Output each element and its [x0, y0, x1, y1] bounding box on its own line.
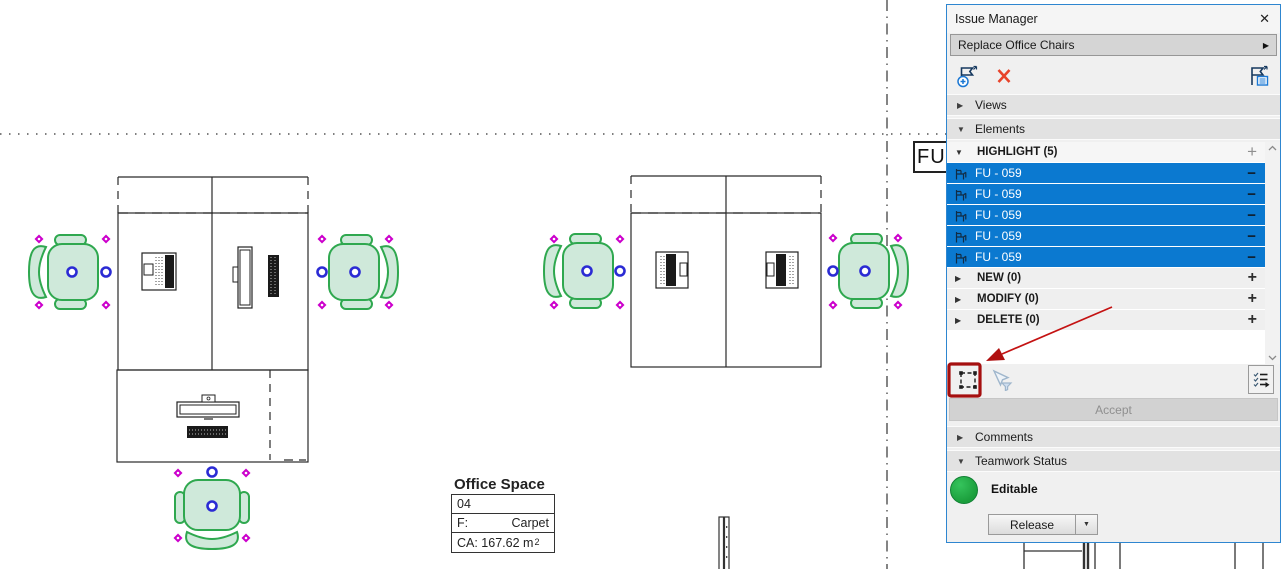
office-chair-4[interactable] [544, 234, 613, 308]
issue-manager-panel: Issue Manager ✕ Replace Office Chairs ▶ [946, 4, 1281, 543]
issue-name: Replace Office Chairs [958, 38, 1263, 52]
laptop-center-left[interactable] [656, 252, 688, 288]
marquee-select-button[interactable] [955, 367, 981, 393]
panel-titlebar: Issue Manager ✕ [947, 5, 1280, 33]
room-name: Office Space [451, 476, 555, 493]
laptop-center-right[interactable] [766, 252, 798, 288]
monitor-right-desk[interactable] [233, 247, 279, 308]
room-area-row: CA: 167.62 m2 [452, 533, 554, 552]
add-icon[interactable]: + [1247, 142, 1257, 162]
elements-list: ▼ HIGHLIGHT (5) + FU - 059 − FU - 059 [947, 142, 1280, 364]
release-split-button: Release ▼ [988, 514, 1098, 535]
release-button[interactable]: Release [988, 514, 1076, 535]
chevron-right-icon: ▶ [957, 433, 966, 442]
filter-icon [989, 369, 1013, 391]
chevron-right-icon: ▶ [955, 274, 965, 283]
chair-icon [953, 187, 967, 202]
teamwork-status-content: Editable Release ▼ [947, 472, 1280, 542]
section-elements-label: Elements [975, 122, 1025, 136]
delete-issue-icon [995, 67, 1013, 85]
list-item-label: FU - 059 [975, 187, 1247, 201]
app-window: FU Office Space 04 F: Carpet CA: 167.62 … [0, 0, 1283, 569]
section-elements[interactable]: ▼ Elements [947, 118, 1280, 140]
zone-tag[interactable]: FU [913, 141, 950, 173]
flyout-arrow-icon: ▶ [1263, 41, 1269, 50]
wall-detail-center [719, 517, 729, 569]
filter-select-button[interactable] [988, 367, 1014, 393]
accept-button[interactable]: Accept [949, 398, 1278, 421]
add-icon[interactable]: + [1248, 290, 1257, 308]
section-teamwork-status[interactable]: ▼ Teamwork Status [947, 450, 1280, 472]
list-item[interactable]: FU - 059 − [947, 226, 1265, 246]
zone-tag-label: FU [917, 146, 946, 169]
section-comments[interactable]: ▶ Comments [947, 426, 1280, 448]
editable-status-label: Editable [991, 482, 1038, 496]
close-icon[interactable]: ✕ [1257, 11, 1272, 27]
chair-icon [953, 208, 967, 223]
room-area-sup: 2 [534, 538, 539, 547]
list-item-label: FU - 059 [975, 208, 1247, 222]
chair-icon [953, 229, 967, 244]
highlight-group-row[interactable]: ▼ HIGHLIGHT (5) + [947, 142, 1265, 162]
release-button-label: Release [1010, 518, 1054, 532]
issue-selector[interactable]: Replace Office Chairs ▶ [950, 34, 1277, 56]
list-options-button[interactable] [1248, 365, 1274, 394]
release-dropdown-button[interactable]: ▼ [1076, 514, 1098, 535]
checklist-icon [1252, 370, 1270, 390]
room-stamp-table: 04 F: Carpet CA: 167.62 m2 [451, 494, 555, 553]
office-chair-1[interactable] [29, 235, 98, 309]
room-finish-row: F: Carpet [452, 514, 554, 533]
add-icon[interactable]: + [1248, 311, 1257, 329]
highlight-group-label: HIGHLIGHT (5) [977, 146, 1247, 158]
remove-icon[interactable]: − [1247, 228, 1256, 245]
chair-icon [953, 166, 967, 181]
modify-group-label: MODIFY (0) [977, 293, 1248, 305]
room-finish-value: Carpet [511, 516, 549, 530]
list-item[interactable]: FU - 059 − [947, 163, 1265, 183]
section-comments-label: Comments [975, 430, 1033, 444]
laptop-left-desk[interactable] [142, 253, 176, 290]
monitor-lower-desk[interactable] [177, 395, 239, 438]
wall-detail-bottom-right [1024, 543, 1263, 569]
room-finish-key: F: [457, 516, 468, 530]
room-area-text: CA: 167.62 m [457, 536, 533, 550]
delete-group-label: DELETE (0) [977, 314, 1248, 326]
office-chair-3[interactable] [175, 480, 249, 549]
chevron-right-icon: ▶ [957, 101, 966, 110]
scroll-up-icon[interactable] [1268, 145, 1277, 151]
editable-status-icon [950, 476, 978, 504]
section-views-label: Views [975, 98, 1007, 112]
panel-title: Issue Manager [955, 12, 1257, 26]
chevron-down-icon: ▼ [957, 457, 966, 466]
list-item[interactable]: FU - 059 − [947, 184, 1265, 204]
list-item-label: FU - 059 [975, 166, 1247, 180]
delete-issue-button[interactable] [995, 67, 1013, 85]
remove-icon[interactable]: − [1247, 165, 1256, 182]
new-issue-button[interactable] [956, 64, 981, 88]
remove-icon[interactable]: − [1247, 207, 1256, 224]
selection-tools-row [947, 364, 1280, 395]
marquee-icon [956, 368, 980, 392]
room-number: 04 [452, 495, 554, 514]
list-item-label: FU - 059 [975, 229, 1247, 243]
delete-group-row[interactable]: ▶ DELETE (0) + [947, 310, 1265, 330]
remove-icon[interactable]: − [1247, 186, 1256, 203]
scroll-down-icon[interactable] [1268, 355, 1277, 361]
list-item-label: FU - 059 [975, 250, 1247, 264]
new-issue-icon [956, 64, 981, 88]
list-item[interactable]: FU - 059 − [947, 247, 1265, 267]
issue-details-button[interactable] [1246, 64, 1271, 88]
issue-details-icon [1246, 64, 1271, 88]
section-teamwork-label: Teamwork Status [975, 454, 1067, 468]
new-group-row[interactable]: ▶ NEW (0) + [947, 268, 1265, 288]
office-chair-2[interactable] [329, 235, 398, 309]
remove-icon[interactable]: − [1247, 249, 1256, 266]
modify-group-row[interactable]: ▶ MODIFY (0) + [947, 289, 1265, 309]
section-views[interactable]: ▶ Views [947, 94, 1280, 116]
list-scrollbar[interactable] [1265, 142, 1280, 364]
chevron-right-icon: ▶ [955, 295, 965, 304]
chevron-down-icon: ▼ [955, 148, 965, 157]
new-group-label: NEW (0) [977, 272, 1248, 284]
office-chair-5[interactable] [839, 234, 908, 308]
chevron-down-icon: ▼ [957, 125, 966, 134]
room-stamp[interactable]: Office Space 04 F: Carpet CA: 167.62 m2 [451, 476, 555, 553]
add-icon[interactable]: + [1248, 269, 1257, 287]
list-item[interactable]: FU - 059 − [947, 205, 1265, 225]
chevron-right-icon: ▶ [955, 316, 965, 325]
issue-toolbar [947, 59, 1280, 92]
chair-icon [953, 250, 967, 265]
